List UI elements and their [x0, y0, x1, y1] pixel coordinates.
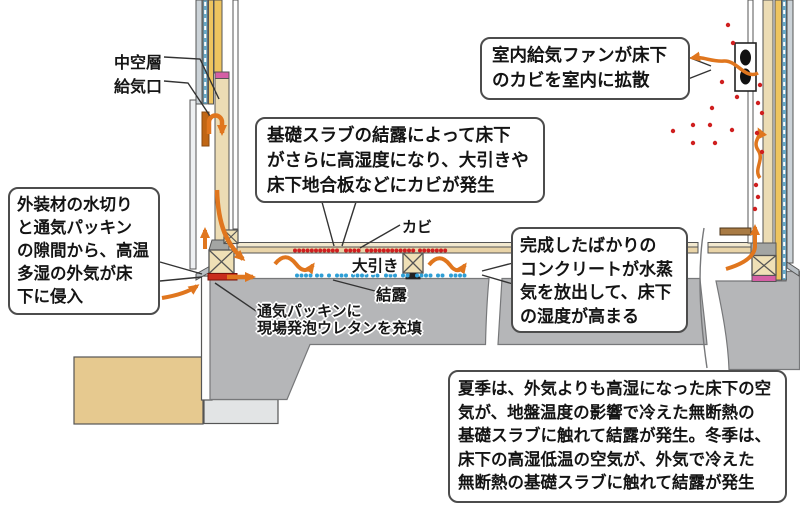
insulation-right [775, 0, 782, 280]
insulation-strip [209, 0, 214, 104]
interior-board-right-lower [748, 91, 753, 243]
interior-board-right-upper [748, 0, 753, 43]
insulation-wide [214, 0, 222, 73]
mold-label: カビ [402, 216, 432, 237]
packing-note-label: 通気パッキンに 現場発泡ウレタンを充填 [257, 304, 422, 337]
airflow-arrow-outside [162, 286, 197, 298]
hollow-layer-label: 中空層 [114, 49, 162, 73]
siding-lower [190, 100, 196, 269]
callout-fresh-concrete: 完成したばかりの コンクリートが水蒸 気を放出して、床下 の湿度が高まる [511, 227, 688, 333]
siding-upper [196, 0, 202, 104]
soil-block [74, 357, 203, 424]
airflow-arrow-underfloor-right [429, 258, 465, 270]
airflow-arrow-underfloor-left [275, 257, 313, 270]
baseboard [720, 228, 751, 235]
construction-section-diagram: 中空層 給気口 カビ 大引き 結露 通気パッキンに 現場発泡ウレタンを充填 外装… [0, 0, 800, 509]
packing-pink-left [215, 72, 229, 79]
interior-board-left [233, 0, 238, 229]
sill-beam-left [209, 250, 234, 274]
wall-stud-right [763, 0, 773, 243]
siding-right [787, 0, 793, 263]
airflow-arrow-cavity-up [756, 130, 760, 178]
footing [204, 400, 278, 424]
air-inlet-label: 給気口 [114, 73, 162, 97]
callout-exterior-air: 外装材の水切り と通気パッキン の隙間から、高温 多湿の外気が床 下に侵入 [8, 187, 160, 315]
slab-right [716, 272, 800, 370]
sill-beam-right [752, 256, 776, 276]
girder-label: 大引き [352, 254, 399, 276]
mold-dots-row [293, 249, 447, 253]
callout-season-note: 夏季は、外気よりも高湿になった床下の空 気が、地盤温度の影響で冷えた無断熱の 基… [448, 370, 787, 503]
left-wall [190, 0, 238, 280]
callout-supply-fan: 室内給気ファンが床下 のカビを室内に拡散 [480, 37, 690, 100]
wall-stud-left [215, 79, 229, 241]
condensation-label: 結露 [376, 283, 407, 305]
callout-slab-condensation: 基礎スラブの結露によって床下 がさらに高湿度になり、大引きや 床下地合板などにカ… [255, 117, 545, 203]
packing-pink-right [752, 276, 776, 282]
